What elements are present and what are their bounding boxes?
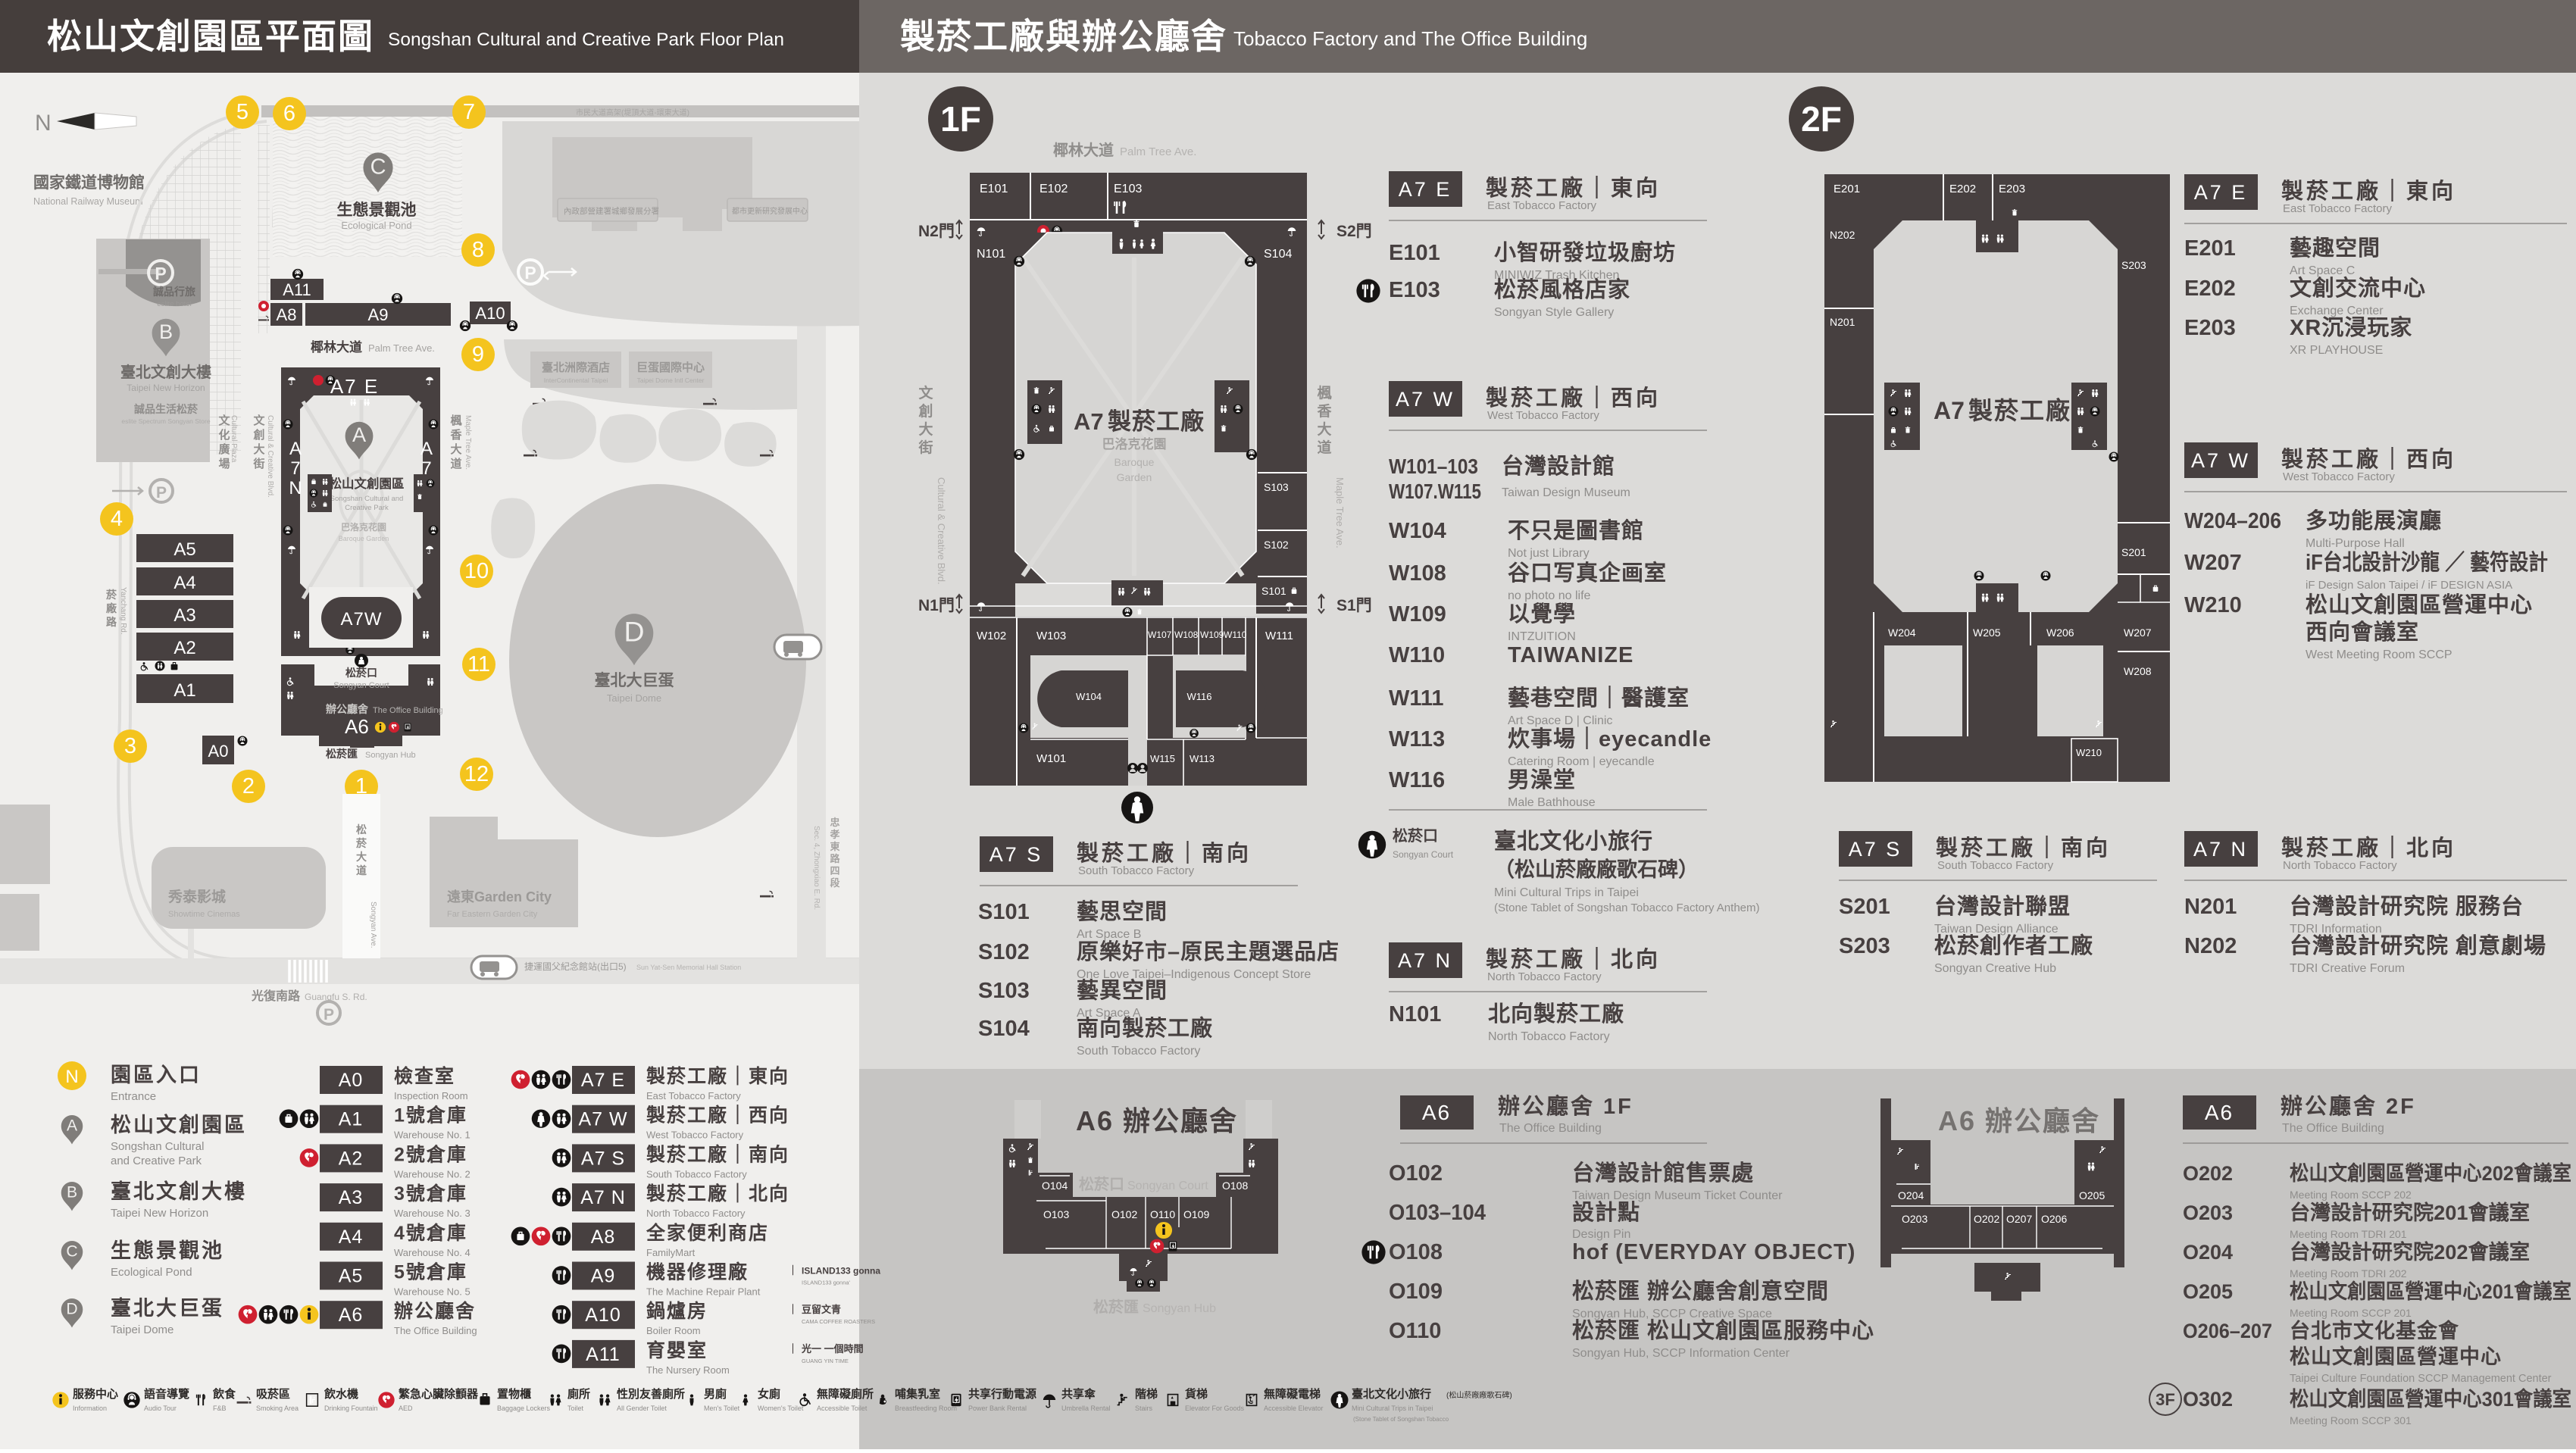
svg-text:Taipei New Horizon: Taipei New Horizon (127, 383, 205, 393)
svg-text:Accessible Elevator: Accessible Elevator (1264, 1405, 1324, 1412)
svg-text:Creative Park: Creative Park (345, 504, 389, 512)
svg-text:吸菸區: 吸菸區 (256, 1387, 290, 1401)
svg-text:A11: A11 (283, 280, 311, 299)
svg-text:A6 辦公廳舍: A6 辦公廳舍 (1938, 1105, 2100, 1136)
svg-text:O109: O109 (1389, 1280, 1443, 1304)
svg-text:製菸工廠｜南向: 製菸工廠｜南向 (1936, 835, 2111, 861)
svg-text:P: P (155, 264, 166, 283)
svg-text:A7W: A7W (340, 609, 382, 630)
svg-text:O103–104: O103–104 (1389, 1201, 1486, 1225)
svg-text:Baroque: Baroque (1114, 456, 1155, 468)
svg-text:Warehouse No. 2: Warehouse No. 2 (394, 1168, 470, 1180)
svg-text:Taipei Dome: Taipei Dome (111, 1323, 174, 1336)
svg-text:N2門: N2門 (918, 223, 955, 240)
svg-text:7: 7 (463, 100, 475, 124)
svg-text:製菸工廠｜東向: 製菸工廠｜東向 (1486, 175, 1661, 201)
svg-text:A7 E: A7 E (581, 1070, 625, 1091)
svg-text:Mini Cultural Trips in Taipei: Mini Cultural Trips in Taipei (1494, 886, 1639, 899)
svg-text:Art Space D | Clinic: Art Space D | Clinic (1508, 714, 1612, 727)
svg-text:廁所: 廁所 (567, 1387, 590, 1401)
svg-text:誠品生活松菸: 誠品生活松菸 (134, 403, 199, 415)
svg-text:松山文創園區營運中心: 松山文創園區營運中心 (2306, 592, 2533, 617)
svg-text:2F: 2F (1801, 99, 1842, 139)
svg-text:D: D (66, 1300, 77, 1317)
svg-text:ISLAND133 gonna': ISLAND133 gonna' (802, 1280, 851, 1286)
svg-text:原樂好市–原民主題選品店: 原樂好市–原民主題選品店 (1077, 939, 1340, 964)
svg-text:製菸工廠: 製菸工廠 (1108, 408, 1205, 435)
svg-text:South Tobacco Factory: South Tobacco Factory (1077, 1045, 1200, 1058)
svg-text:藝異空間: 藝異空間 (1077, 977, 1168, 1003)
svg-text:West Tobacco Factory: West Tobacco Factory (2283, 470, 2395, 483)
svg-text:都市更新研究發展中心: 都市更新研究發展中心 (732, 206, 808, 216)
svg-text:台灣設計研究院202會議室: 台灣設計研究院202會議室 (2290, 1240, 2530, 1264)
svg-text:3號倉庫: 3號倉庫 (394, 1183, 467, 1205)
svg-text:Women's Toilet: Women's Toilet (758, 1405, 804, 1412)
svg-text:3: 3 (124, 734, 136, 758)
svg-text:Multi-Purpose Hall: Multi-Purpose Hall (2306, 537, 2405, 550)
svg-text:A1: A1 (174, 680, 195, 701)
svg-text:松菸匯 松山文創園區服務中心: 松菸匯 松山文創園區服務中心 (1572, 1317, 1874, 1343)
svg-text:N101: N101 (977, 248, 1005, 261)
svg-text:辦公廳舍: 辦公廳舍 (326, 703, 369, 715)
svg-text:W115: W115 (1150, 753, 1175, 764)
svg-text:E203: E203 (1999, 183, 2025, 195)
svg-text:10: 10 (464, 559, 489, 583)
svg-text:O103: O103 (1043, 1208, 1069, 1220)
svg-text:A7 N: A7 N (1398, 949, 1452, 972)
svg-text:W104: W104 (1389, 519, 1446, 543)
svg-text:製菸工廠｜北向: 製菸工廠｜北向 (646, 1183, 789, 1205)
svg-text:遠東Garden City: 遠東Garden City (447, 889, 552, 905)
svg-text:藝巷空間｜醫護室: 藝巷空間｜醫護室 (1508, 685, 1690, 711)
svg-text:Entrance: Entrance (111, 1090, 156, 1103)
svg-text:S101: S101 (978, 900, 1030, 924)
svg-text:TAIWANIZE: TAIWANIZE (1508, 643, 1633, 667)
svg-text:Meeting Room SCCP 201: Meeting Room SCCP 201 (2290, 1307, 2412, 1319)
svg-text:S102: S102 (978, 940, 1030, 964)
svg-text:南向製菸工廠: 南向製菸工廠 (1077, 1015, 1213, 1041)
svg-text:Songshan Cultural: Songshan Cultural (111, 1140, 204, 1153)
svg-text:性別友善廁所: 性別友善廁所 (617, 1387, 685, 1401)
svg-text:(Stone Tablet of Songshan Toba: (Stone Tablet of Songshan Tobacco Factor… (1494, 901, 1760, 914)
svg-text:C: C (370, 155, 386, 179)
svg-text:台北市文化基金會: 台北市文化基金會 (2290, 1319, 2459, 1342)
svg-text:O205: O205 (2079, 1189, 2105, 1201)
svg-text:S103: S103 (978, 979, 1030, 1003)
svg-text:A2: A2 (174, 638, 195, 658)
svg-text:松菸匯: 松菸匯 (1093, 1298, 1139, 1316)
svg-text:Elevator For Goods: Elevator For Goods (1185, 1405, 1245, 1412)
svg-text:台灣設計研究院 創意劇場: 台灣設計研究院 創意劇場 (2290, 933, 2546, 958)
svg-text:B: B (67, 1183, 77, 1201)
svg-text:W111: W111 (1265, 630, 1293, 642)
svg-text:hof (EVERYDAY OBJECT): hof (EVERYDAY OBJECT) (1572, 1240, 1855, 1264)
svg-text:男澡堂: 男澡堂 (1508, 767, 1576, 792)
svg-text:Songyan Court: Songyan Court (1127, 1180, 1208, 1192)
svg-text:飲食: 飲食 (212, 1387, 236, 1401)
svg-text:no photo no life: no photo no life (1508, 589, 1591, 602)
svg-text:育嬰室: 育嬰室 (646, 1339, 708, 1361)
svg-text:C: C (66, 1242, 77, 1260)
svg-text:松菸風格店家: 松菸風格店家 (1494, 277, 1630, 302)
svg-text:北向製菸工廠: 北向製菸工廠 (1488, 1001, 1624, 1026)
svg-text:The Office Building: The Office Building (394, 1325, 477, 1336)
svg-text:A8: A8 (277, 305, 297, 324)
svg-text:West Meeting Room SCCP: West Meeting Room SCCP (2306, 648, 2453, 661)
svg-text:Songyan Hub, SCCP Information: Songyan Hub, SCCP Information Center (1572, 1347, 1790, 1360)
svg-text:文創交流中心: 文創交流中心 (2290, 275, 2426, 301)
svg-text:XR PLAYHOUSE: XR PLAYHOUSE (2290, 344, 2383, 357)
svg-text:Yanchang Rd.: Yanchang Rd. (119, 587, 127, 635)
svg-text:The Office Building: The Office Building (373, 706, 443, 715)
svg-text:Tobacco Factory and The Office: Tobacco Factory and The Office Building (1233, 27, 1587, 50)
svg-text:North Tobacco Factory: North Tobacco Factory (646, 1208, 746, 1219)
svg-text:N201: N201 (1830, 316, 1855, 328)
svg-text:Toilet: Toilet (567, 1405, 584, 1412)
svg-text:Information: Information (73, 1405, 107, 1412)
svg-text:E103: E103 (1114, 183, 1142, 195)
svg-text:The Office Building: The Office Building (2282, 1122, 2384, 1135)
svg-text:Smoking Area: Smoking Area (256, 1405, 299, 1412)
svg-text:S104: S104 (978, 1017, 1030, 1041)
svg-text:South Tobacco Factory: South Tobacco Factory (1078, 864, 1195, 877)
svg-text:XR沉浸玩家: XR沉浸玩家 (2290, 314, 2412, 340)
svg-text:（松山菸廠廠歌石碑）: （松山菸廠廠歌石碑） (1494, 858, 1699, 881)
svg-text:S201: S201 (1839, 895, 1890, 919)
svg-text:N201: N201 (2184, 895, 2237, 919)
svg-text:S203: S203 (1839, 934, 1890, 958)
svg-text:W210: W210 (2184, 593, 2242, 617)
svg-text:光復南路: 光復南路 (251, 989, 301, 1003)
svg-text:A: A (67, 1117, 78, 1134)
svg-text:台灣設計館: 台灣設計館 (1502, 453, 1615, 479)
svg-text:A10: A10 (585, 1305, 621, 1326)
svg-text:A8: A8 (591, 1226, 616, 1248)
svg-text:A7 E: A7 E (1399, 178, 1452, 201)
svg-text:Garden: Garden (1117, 471, 1152, 483)
svg-text:小智研發垃圾廚坊: 小智研發垃圾廚坊 (1494, 239, 1676, 265)
svg-text:谷口写真企画室: 谷口写真企画室 (1508, 560, 1667, 586)
svg-text:Baroque Garden: Baroque Garden (339, 535, 389, 542)
svg-text:捷運國父紀念館站(出口5): 捷運國父紀念館站(出口5) (524, 961, 627, 972)
svg-text:生態景觀池: 生態景觀池 (111, 1239, 224, 1262)
svg-text:Palm Tree Ave.: Palm Tree Ave. (1120, 145, 1196, 158)
svg-text:W204–206: W204–206 (2184, 509, 2281, 533)
svg-text:(Stone Tablet of Songshan Toba: (Stone Tablet of Songshan Tobacco (1353, 1416, 1449, 1423)
svg-text:Cultural Plaza: Cultural Plaza (230, 415, 238, 463)
svg-text:Songyan Court: Songyan Court (333, 681, 389, 690)
svg-text:A5: A5 (174, 539, 195, 560)
svg-text:W110: W110 (1224, 630, 1247, 640)
svg-text:製菸工廠與辦公廳舍: 製菸工廠與辦公廳舍 (900, 17, 1227, 56)
svg-text:Songyan Creative Hub: Songyan Creative Hub (1934, 962, 2056, 975)
svg-text:O205: O205 (2183, 1280, 2233, 1303)
svg-text:西向會議室: 西向會議室 (2306, 619, 2419, 645)
svg-text:Design Pin: Design Pin (1572, 1228, 1630, 1241)
svg-text:臺北文化小旅行: 臺北文化小旅行 (1494, 828, 1653, 854)
svg-text:Warehouse No. 4: Warehouse No. 4 (394, 1247, 470, 1258)
svg-text:Showtime Cinemas: Showtime Cinemas (168, 910, 240, 919)
svg-text:W210: W210 (2076, 747, 2102, 758)
svg-text:South Tobacco Factory: South Tobacco Factory (646, 1168, 747, 1180)
svg-text:6: 6 (283, 102, 295, 126)
svg-text:A3: A3 (174, 605, 195, 626)
svg-text:哺集乳室: 哺集乳室 (895, 1387, 940, 1401)
svg-text:FamilyMart: FamilyMart (646, 1247, 696, 1258)
svg-text:Sun Yat-Sen Memorial Hall Stat: Sun Yat-Sen Memorial Hall Station (636, 964, 741, 971)
svg-text:F&B: F&B (213, 1405, 227, 1412)
svg-text:臺北文創大樓: 臺北文創大樓 (120, 363, 211, 381)
svg-text:9: 9 (472, 342, 484, 367)
svg-text:｜: ｜ (788, 1304, 798, 1315)
svg-text:共享行動電源: 共享行動電源 (968, 1387, 1036, 1401)
svg-text:A5: A5 (339, 1266, 364, 1287)
svg-text:West Tobacco Factory: West Tobacco Factory (646, 1130, 744, 1141)
svg-text:S1門: S1門 (1336, 597, 1372, 614)
svg-text:台灣設計研究院201會議室: 台灣設計研究院201會議室 (2290, 1201, 2530, 1224)
svg-text:Baggage Lockers: Baggage Lockers (497, 1405, 551, 1412)
svg-text:無障礙電梯: 無障礙電梯 (1264, 1387, 1321, 1401)
svg-text:製菸工廠｜東向: 製菸工廠｜東向 (646, 1065, 789, 1087)
svg-text:E203: E203 (2184, 316, 2236, 340)
svg-text:臺北大巨蛋: 臺北大巨蛋 (595, 672, 674, 689)
svg-text:巴洛克花園: 巴洛克花園 (341, 521, 386, 533)
svg-text:The Nursery Room: The Nursery Room (646, 1364, 730, 1376)
svg-text:8: 8 (472, 238, 484, 262)
svg-text:E202: E202 (1949, 183, 1976, 195)
svg-text:Guangfu S. Rd.: Guangfu S. Rd. (305, 992, 367, 1002)
svg-text:Songyan Hub: Songyan Hub (1143, 1302, 1216, 1315)
svg-text:無障礙廁所: 無障礙廁所 (817, 1387, 874, 1401)
svg-text:松菸創作者工廠: 松菸創作者工廠 (1934, 933, 2093, 958)
svg-text:Warehouse No. 5: Warehouse No. 5 (394, 1286, 470, 1298)
svg-text:Taipei Dome Intl Center: Taipei Dome Intl Center (637, 377, 705, 384)
svg-text:Songyan Court: Songyan Court (1393, 849, 1454, 860)
svg-text:松山文創園區: 松山文創園區 (330, 476, 405, 491)
svg-text:Songyan Style Gallery: Songyan Style Gallery (1494, 306, 1614, 319)
svg-text:松菸匯 辦公廳舍創意空間: 松菸匯 辦公廳舍創意空間 (1572, 1278, 1829, 1304)
svg-text:Maple Tree Ave.: Maple Tree Ave. (464, 415, 472, 470)
svg-text:W116: W116 (1187, 691, 1212, 702)
svg-text:5: 5 (236, 100, 249, 124)
svg-text:A3: A3 (339, 1187, 364, 1208)
svg-text:製菸工廠｜北向: 製菸工廠｜北向 (2281, 835, 2456, 861)
svg-text:AED: AED (399, 1405, 413, 1412)
svg-text:松山文創園區營運中心201會議室: 松山文創園區營運中心201會議室 (2290, 1280, 2571, 1303)
svg-text:全家便利商店: 全家便利商店 (646, 1222, 769, 1244)
svg-text:Power Bank Rental: Power Bank Rental (968, 1405, 1027, 1412)
svg-text:S2門: S2門 (1336, 223, 1372, 240)
svg-text:West Tobacco Factory: West Tobacco Factory (1487, 409, 1599, 422)
svg-text:N: N (35, 111, 52, 136)
svg-text:O109: O109 (1183, 1208, 1209, 1220)
svg-text:P: P (524, 263, 536, 283)
svg-text:Meeting Room SCCP 202: Meeting Room SCCP 202 (2290, 1189, 2412, 1201)
svg-text:服務中心: 服務中心 (73, 1387, 118, 1401)
svg-text:The Machine Repair Plant: The Machine Repair Plant (646, 1286, 761, 1298)
svg-text:台灣設計館售票處: 台灣設計館售票處 (1572, 1160, 1754, 1186)
svg-text:East Tobacco Factory: East Tobacco Factory (646, 1090, 741, 1101)
svg-text:1號倉庫: 1號倉庫 (394, 1105, 467, 1126)
svg-text:A2: A2 (339, 1148, 364, 1169)
svg-text:松山文創園區營運中心: 松山文創園區營運中心 (2290, 1345, 2502, 1368)
svg-text:O206: O206 (2041, 1213, 2067, 1225)
svg-text:11: 11 (467, 652, 490, 677)
svg-text:CAMA COFFEE ROASTERS: CAMA COFFEE ROASTERS (802, 1318, 875, 1325)
svg-text:O102: O102 (1389, 1161, 1443, 1186)
svg-text:N1門: N1門 (918, 597, 955, 614)
svg-text:階梯: 階梯 (1135, 1387, 1158, 1401)
svg-text:eslite hotel: eslite hotel (157, 300, 191, 308)
svg-text:製菸工廠｜西向: 製菸工廠｜西向 (1486, 385, 1661, 411)
svg-text:O108: O108 (1222, 1180, 1248, 1192)
svg-text:松菸匯: 松菸匯 (326, 748, 358, 760)
svg-text:4號倉庫: 4號倉庫 (394, 1222, 467, 1244)
svg-text:鍋爐房: 鍋爐房 (646, 1300, 708, 1322)
svg-text:Warehouse No. 1: Warehouse No. 1 (394, 1130, 470, 1141)
svg-text:O207: O207 (2006, 1213, 2032, 1225)
svg-text:W207: W207 (2184, 551, 2242, 575)
svg-text:N: N (65, 1067, 78, 1087)
svg-text:菸廠路: 菸廠路 (106, 589, 117, 628)
svg-text:A7 S: A7 S (581, 1148, 625, 1169)
svg-text:A6: A6 (2205, 1101, 2234, 1124)
svg-text:INTZUITION: INTZUITION (1508, 630, 1576, 643)
svg-text:East Tobacco Factory: East Tobacco Factory (2283, 202, 2392, 215)
svg-text:O108: O108 (1389, 1240, 1443, 1264)
svg-text:N101: N101 (1389, 1002, 1441, 1026)
svg-text:Songshan Cultural and Creative: Songshan Cultural and Creative Park Floo… (388, 30, 784, 50)
svg-text:E101: E101 (1389, 241, 1440, 265)
svg-text:A4: A4 (339, 1226, 364, 1248)
svg-text:A7 S: A7 S (1849, 838, 1902, 861)
svg-text:S104: S104 (1264, 248, 1292, 261)
svg-text:Songshan Cultural and: Songshan Cultural and (330, 495, 404, 503)
svg-text:製菸工廠｜東向: 製菸工廠｜東向 (2281, 178, 2456, 204)
svg-text:5號倉庫: 5號倉庫 (394, 1261, 467, 1283)
svg-text:A1: A1 (339, 1109, 364, 1130)
svg-text:W109: W109 (1389, 602, 1446, 627)
svg-text:E202: E202 (2184, 277, 2236, 301)
svg-text:椰林大道: 椰林大道 (1053, 141, 1114, 159)
svg-text:Taipei Dome: Taipei Dome (607, 692, 661, 704)
svg-text:eslite Spectrum Songyan Store: eslite Spectrum Songyan Store (121, 417, 210, 425)
svg-text:共享傘: 共享傘 (1061, 1387, 1096, 1401)
svg-text:藝思空間: 藝思空間 (1077, 898, 1168, 924)
svg-text:A7N: A7N (289, 439, 302, 498)
svg-text:A0: A0 (208, 742, 229, 761)
svg-text:Inspection Room: Inspection Room (394, 1090, 468, 1101)
svg-text:A: A (352, 423, 367, 446)
svg-text:National Railway Museum: National Railway Museum (33, 196, 143, 207)
svg-text:W109: W109 (1200, 630, 1224, 640)
svg-text:語音導覽: 語音導覽 (144, 1387, 189, 1401)
svg-text:W111: W111 (1389, 686, 1444, 711)
svg-text:A11: A11 (586, 1344, 621, 1365)
svg-text:Umbrella Rental: Umbrella Rental (1061, 1405, 1111, 1412)
svg-text:A6: A6 (339, 1305, 364, 1326)
svg-text:O203: O203 (1902, 1213, 1927, 1225)
svg-text:臺北洲際酒店: 臺北洲際酒店 (542, 361, 610, 374)
svg-text:W206: W206 (2046, 627, 2074, 639)
svg-text:A4: A4 (174, 573, 195, 593)
svg-text:Songyan Hub: Songyan Hub (365, 751, 416, 760)
svg-text:O110: O110 (1389, 1319, 1441, 1343)
svg-text:設計點: 設計點 (1572, 1199, 1640, 1225)
svg-text:2: 2 (242, 774, 255, 798)
svg-text:Songyan Ave.: Songyan Ave. (369, 901, 377, 948)
svg-text:W104: W104 (1076, 691, 1102, 702)
svg-text:製菸工廠｜南向: 製菸工廠｜南向 (646, 1143, 789, 1165)
svg-text:Far Eastern Garden City: Far Eastern Garden City (447, 910, 538, 919)
svg-text:North Tobacco Factory: North Tobacco Factory (1487, 970, 1602, 983)
svg-text:Stairs: Stairs (1135, 1405, 1153, 1412)
svg-text:and Creative Park: and Creative Park (111, 1155, 202, 1167)
svg-text:W108: W108 (1174, 630, 1199, 640)
svg-text:O202: O202 (1974, 1213, 1999, 1225)
svg-text:3F: 3F (2156, 1390, 2175, 1409)
svg-text:女廁: 女廁 (758, 1387, 780, 1401)
svg-text:松山文創園區營運中心202會議室: 松山文創園區營運中心202會議室 (2290, 1161, 2571, 1185)
svg-text:S201: S201 (2121, 546, 2146, 558)
svg-text:巨蛋國際中心: 巨蛋國際中心 (636, 361, 705, 374)
svg-text:巴洛克花園: 巴洛克花園 (1102, 436, 1167, 452)
svg-text:W107.W115: W107.W115 (1389, 480, 1481, 503)
svg-text:O206–207: O206–207 (2183, 1320, 2272, 1342)
svg-text:O104: O104 (1042, 1180, 1068, 1192)
svg-text:Male Bathhouse: Male Bathhouse (1508, 796, 1596, 809)
svg-text:Ecological Pond: Ecological Pond (341, 220, 411, 231)
svg-text:O203: O203 (2183, 1201, 2233, 1224)
svg-text:貨梯: 貨梯 (1185, 1387, 1208, 1401)
svg-text:松山文創園區平面圖: 松山文創園區平面圖 (47, 17, 374, 56)
svg-text:A7 W: A7 W (1396, 388, 1455, 411)
svg-text:製菸工廠: 製菸工廠 (1968, 397, 2071, 424)
svg-text:松山文創園區營運中心301會議室: 松山文創園區營運中心301會議室 (2290, 1387, 2571, 1411)
svg-text:W113: W113 (1190, 753, 1215, 764)
svg-text:N202: N202 (1830, 229, 1855, 241)
svg-text:A7 W: A7 W (578, 1109, 627, 1130)
svg-text:E101: E101 (980, 183, 1008, 195)
svg-text:N202: N202 (2184, 934, 2237, 958)
svg-text:Warehouse No. 3: Warehouse No. 3 (394, 1208, 470, 1219)
svg-text:O302: O302 (2183, 1388, 2233, 1411)
svg-text:P: P (156, 484, 167, 502)
svg-text:A7 N: A7 N (2193, 838, 2248, 861)
svg-text:W204: W204 (1888, 627, 1916, 639)
svg-text:12: 12 (464, 762, 489, 786)
svg-text:W205: W205 (1973, 627, 2001, 639)
svg-text:忠孝東路四段: 忠孝東路四段 (829, 817, 840, 889)
svg-text:E201: E201 (2184, 236, 2236, 261)
svg-text:男廁: 男廁 (704, 1387, 727, 1401)
svg-text:Accessible Toilet: Accessible Toilet (817, 1405, 868, 1412)
svg-text:多功能展演廳: 多功能展演廳 (2306, 508, 2442, 533)
svg-text:GUANG YIN TIME: GUANG YIN TIME (802, 1358, 849, 1364)
svg-text:松菸口: 松菸口 (345, 667, 377, 679)
svg-text:松菸口: 松菸口 (1079, 1175, 1124, 1193)
svg-text:Art Space C: Art Space C (2290, 264, 2355, 277)
svg-text:ISLAND133 gonna: ISLAND133 gonna (802, 1266, 880, 1276)
svg-text:生態景觀池: 生態景觀池 (337, 201, 417, 219)
svg-text:S102: S102 (1264, 539, 1289, 551)
svg-text:園區入口: 園區入口 (111, 1064, 202, 1086)
svg-text:椰林大道: 椰林大道 (311, 339, 362, 355)
svg-text:4: 4 (111, 507, 123, 531)
svg-text:A6 辦公廳舍: A6 辦公廳舍 (1076, 1105, 1238, 1136)
svg-text:Meeting Room TDRI 202: Meeting Room TDRI 202 (2290, 1267, 2407, 1280)
svg-text:藝趣空間: 藝趣空間 (2290, 235, 2381, 261)
